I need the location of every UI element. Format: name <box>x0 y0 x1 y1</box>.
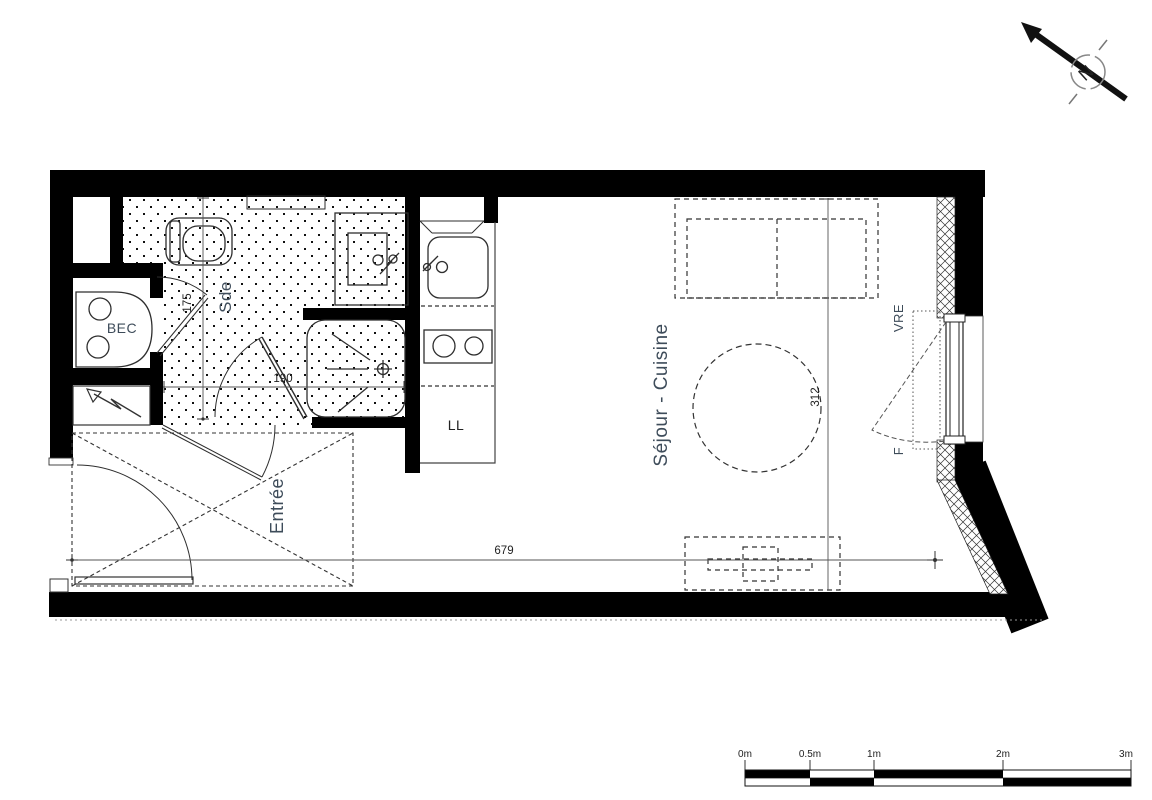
label-window: F <box>891 447 906 455</box>
wall-left <box>50 197 73 462</box>
electrical-arrow-head <box>87 389 101 402</box>
scale-label-3: 3m <box>1119 749 1133 760</box>
wall-right-upper <box>955 170 983 318</box>
room-label-bathroom: Sde <box>216 281 235 313</box>
label-roller-shutter: VRE <box>891 304 906 332</box>
cooktop <box>424 330 492 363</box>
wall-bottom <box>49 592 1010 617</box>
wall-niche-right <box>110 197 123 263</box>
north-arrow: N <box>1021 22 1126 104</box>
wall-kitchen <box>405 197 420 473</box>
dimension-apartment-width-label: 679 <box>494 545 513 557</box>
wall-niche-pillar <box>484 197 498 223</box>
scale-label-2: 2m <box>996 749 1010 760</box>
kitchen-sink <box>423 237 488 298</box>
scale-bar: 0m 0.5m 1m 2m 3m <box>738 749 1133 786</box>
wall-bec-bottom <box>50 368 163 385</box>
wall-bec-right-upper <box>150 278 163 298</box>
tv-unit <box>685 537 840 590</box>
dimension-living-depth-label: 312 <box>810 387 822 406</box>
label-washing-machine: LL <box>448 417 465 433</box>
room-label-living-kitchen: Séjour - Cuisine <box>651 323 672 466</box>
window-recess <box>962 316 983 442</box>
bed <box>675 199 878 298</box>
window-swing-arc <box>872 322 946 442</box>
floor-plan-page: 175 190 312 679 Sde BEC Entrée Séjour - … <box>0 0 1152 800</box>
window-cap-top <box>944 314 965 322</box>
scale-label-05: 0.5m <box>799 749 821 760</box>
dimension-bathroom-length-label: 175 <box>182 293 194 312</box>
dining-table <box>693 344 821 472</box>
electrical-panel <box>73 386 150 425</box>
roller-shutter-box <box>913 311 940 449</box>
window-frame-outer <box>946 314 963 444</box>
dimension-living-depth: 312 <box>810 198 834 590</box>
window-cap-bottom <box>944 436 965 444</box>
wall-bec-right-lower <box>150 352 163 425</box>
wardrobe <box>72 433 353 586</box>
wall-bec-top <box>50 263 163 278</box>
scale-label-0: 0m <box>738 749 752 760</box>
wall-shower-top <box>303 308 405 320</box>
room-label-water-heater: BEC <box>107 320 137 336</box>
entry-door <box>49 458 193 592</box>
wall-shower-bottom <box>312 417 405 428</box>
room-label-entry: Entrée <box>267 478 287 534</box>
floor-plan-drawing: 175 190 312 679 Sde BEC Entrée Séjour - … <box>0 0 1152 800</box>
window <box>872 314 983 444</box>
scale-label-1: 1m <box>867 749 881 760</box>
dimension-bathroom-width-label: 190 <box>273 373 292 385</box>
wall-top <box>50 170 985 197</box>
